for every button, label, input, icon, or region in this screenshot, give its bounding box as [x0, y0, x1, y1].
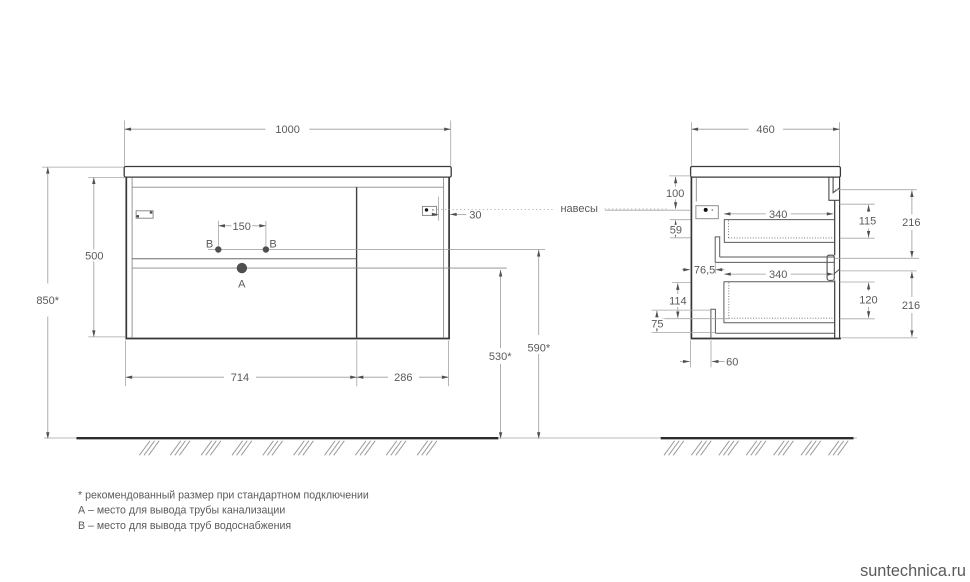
svg-text:714: 714	[231, 372, 249, 384]
svg-text:В – место для вывода труб водо: В – место для вывода труб водоснабжения	[78, 520, 291, 532]
svg-text:114: 114	[669, 295, 687, 307]
svg-text:30: 30	[469, 209, 481, 221]
svg-text:навесы: навесы	[560, 203, 598, 215]
svg-text:286: 286	[394, 372, 412, 384]
svg-text:150: 150	[233, 221, 251, 233]
svg-text:850*: 850*	[36, 295, 59, 307]
svg-text:340: 340	[769, 209, 787, 221]
svg-text:* рекомендованный размер при с: * рекомендованный размер при стандартном…	[78, 489, 369, 501]
svg-text:340: 340	[769, 269, 787, 281]
svg-text:59: 59	[670, 225, 682, 237]
svg-text:75: 75	[651, 318, 663, 330]
svg-text:60: 60	[726, 356, 738, 368]
svg-text:100: 100	[666, 188, 684, 200]
svg-text:530*: 530*	[489, 351, 512, 363]
svg-text:460: 460	[756, 124, 774, 136]
svg-text:120: 120	[859, 294, 877, 306]
svg-text:76,5: 76,5	[694, 265, 715, 277]
svg-text:216: 216	[902, 217, 920, 229]
svg-text:A: A	[238, 278, 246, 290]
svg-text:А – место для вывода трубы кан: А – место для вывода трубы канализации	[78, 505, 285, 517]
svg-text:suntechnica.ru: suntechnica.ru	[860, 562, 966, 580]
svg-text:B: B	[206, 238, 213, 250]
svg-text:115: 115	[859, 216, 877, 228]
svg-text:B: B	[269, 238, 276, 250]
svg-text:590*: 590*	[527, 342, 550, 354]
svg-text:216: 216	[902, 300, 920, 312]
svg-text:500: 500	[85, 251, 103, 263]
svg-text:1000: 1000	[275, 124, 299, 136]
